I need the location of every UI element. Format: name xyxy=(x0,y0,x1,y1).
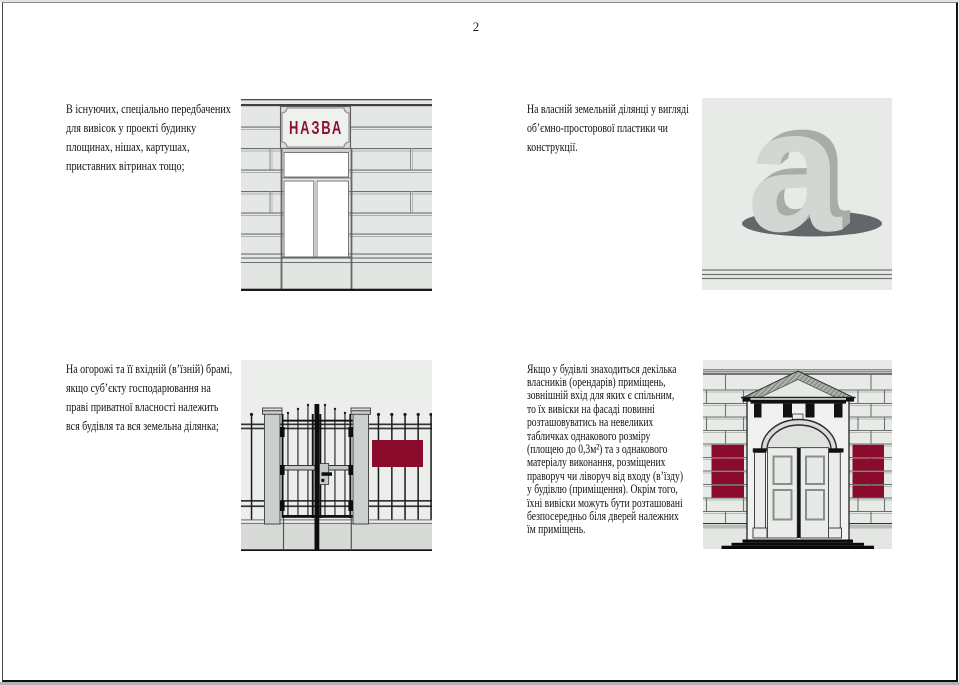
svg-text:НАЗВА: НАЗВА xyxy=(289,118,343,138)
